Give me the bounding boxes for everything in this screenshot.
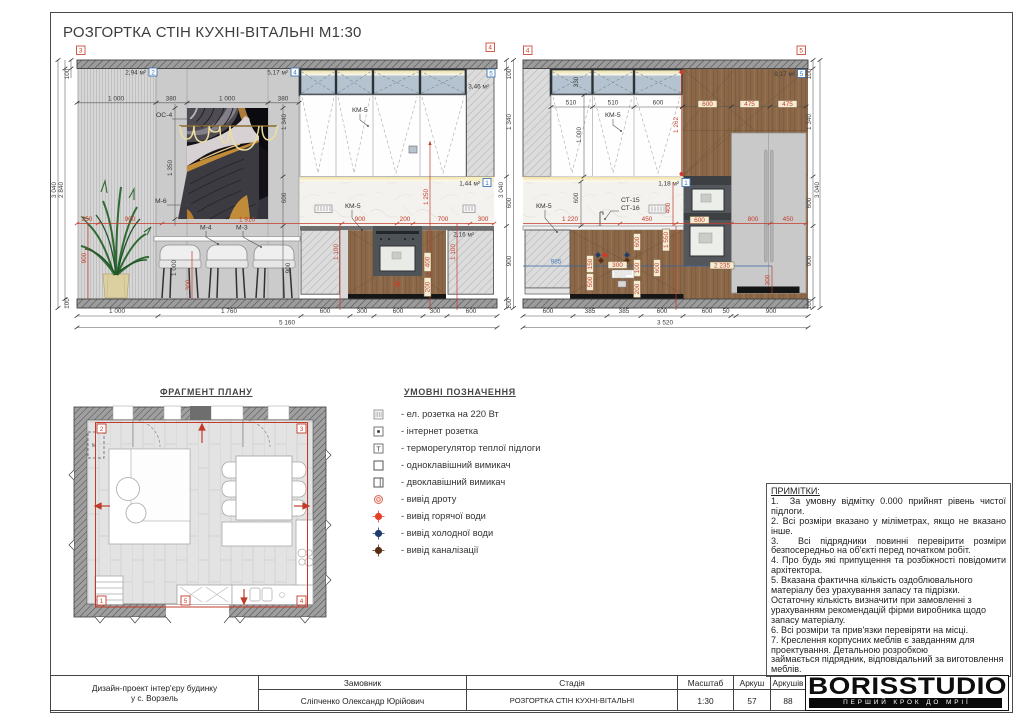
svg-text:600: 600 — [543, 308, 554, 315]
svg-text:600: 600 — [702, 308, 713, 315]
svg-text:250: 250 — [82, 216, 93, 223]
svg-text:600: 600 — [506, 197, 513, 208]
svg-text:3 040: 3 040 — [51, 182, 58, 198]
svg-text:1 910: 1 910 — [239, 217, 255, 224]
svg-text:600: 600 — [657, 308, 668, 315]
svg-text:600: 600 — [320, 308, 331, 315]
svg-text:475: 475 — [782, 101, 793, 108]
svg-text:300: 300 — [357, 308, 368, 315]
svg-text:1 100: 1 100 — [450, 244, 457, 260]
svg-text:КМ-5: КМ-5 — [536, 203, 552, 210]
svg-text:450: 450 — [642, 216, 653, 223]
svg-text:600: 600 — [806, 197, 813, 208]
svg-text:1 000: 1 000 — [576, 127, 583, 143]
svg-text:300: 300 — [765, 274, 772, 285]
svg-text:400: 400 — [425, 256, 432, 267]
svg-text:900: 900 — [766, 308, 777, 315]
svg-text:510: 510 — [608, 100, 619, 107]
svg-text:1 340: 1 340 — [506, 114, 513, 130]
svg-text:5: 5 — [800, 71, 804, 78]
svg-text:600: 600 — [281, 192, 288, 203]
svg-text:СТ-16: СТ-16 — [621, 205, 640, 212]
svg-text:380: 380 — [278, 96, 289, 103]
svg-text:400: 400 — [665, 202, 672, 213]
svg-text:500: 500 — [587, 276, 594, 287]
svg-text:2: 2 — [151, 69, 155, 76]
svg-text:1: 1 — [684, 180, 688, 187]
svg-text:200: 200 — [400, 216, 411, 223]
svg-text:800: 800 — [748, 216, 759, 223]
svg-text:100: 100 — [634, 262, 641, 273]
svg-text:5 160: 5 160 — [279, 320, 295, 327]
svg-text:2 235: 2 235 — [714, 263, 730, 270]
svg-text:600: 600 — [702, 101, 713, 108]
svg-text:300: 300 — [478, 216, 489, 223]
svg-text:ОС-4: ОС-4 — [156, 112, 172, 119]
svg-text:900: 900 — [81, 252, 88, 263]
svg-text:1 760: 1 760 — [221, 308, 237, 315]
svg-text:475: 475 — [744, 101, 755, 108]
svg-text:300: 300 — [430, 308, 441, 315]
svg-text:1,18 м²: 1,18 м² — [658, 181, 679, 188]
svg-text:2 840: 2 840 — [58, 182, 65, 198]
svg-text:700: 700 — [438, 216, 449, 223]
svg-text:900: 900 — [285, 262, 292, 273]
svg-text:600: 600 — [653, 100, 664, 107]
svg-text:100: 100 — [64, 298, 71, 309]
svg-text:4: 4 — [488, 45, 492, 52]
svg-text:900: 900 — [506, 255, 513, 266]
svg-text:385: 385 — [619, 308, 630, 315]
svg-text:1 000: 1 000 — [108, 96, 124, 103]
svg-text:КМ-5: КМ-5 — [605, 112, 621, 119]
svg-text:100: 100 — [64, 68, 71, 79]
svg-text:3 040: 3 040 — [498, 182, 505, 198]
svg-text:T: T — [376, 446, 381, 453]
svg-text:М-6: М-6 — [155, 198, 167, 205]
svg-text:150: 150 — [587, 258, 594, 269]
svg-text:1 340: 1 340 — [806, 114, 813, 130]
svg-text:М-4: М-4 — [200, 225, 212, 232]
svg-text:900: 900 — [806, 255, 813, 266]
svg-text:100: 100 — [806, 298, 813, 309]
svg-text:КМ-5: КМ-5 — [345, 203, 361, 210]
svg-text:1 262: 1 262 — [673, 117, 680, 133]
svg-text:5,17 м²: 5,17 м² — [267, 70, 288, 77]
svg-text:600: 600 — [466, 308, 477, 315]
svg-text:900: 900 — [125, 216, 136, 223]
svg-text:600: 600 — [694, 217, 705, 224]
svg-text:200: 200 — [425, 281, 432, 292]
svg-text:330: 330 — [573, 76, 580, 87]
svg-text:380: 380 — [166, 96, 177, 103]
svg-text:600: 600 — [654, 262, 661, 273]
svg-text:2,16 м²: 2,16 м² — [453, 232, 474, 239]
svg-text:510: 510 — [566, 100, 577, 107]
svg-text:1 340: 1 340 — [281, 114, 288, 130]
svg-text:9,17 м²: 9,17 м² — [774, 71, 795, 78]
svg-text:4: 4 — [526, 48, 530, 55]
svg-text:385: 385 — [585, 308, 596, 315]
svg-text:1 220: 1 220 — [562, 216, 578, 223]
svg-text:985: 985 — [551, 259, 562, 266]
svg-text:100: 100 — [806, 68, 813, 79]
svg-text:1 000: 1 000 — [219, 96, 235, 103]
svg-text:5: 5 — [799, 48, 803, 55]
svg-text:М-3: М-3 — [236, 225, 248, 232]
svg-text:200: 200 — [634, 283, 641, 294]
svg-text:3: 3 — [79, 48, 83, 55]
svg-text:5: 5 — [489, 70, 493, 77]
svg-text:100: 100 — [506, 298, 513, 309]
svg-text:1 250: 1 250 — [423, 189, 430, 205]
svg-text:300: 300 — [185, 279, 192, 290]
svg-text:600: 600 — [393, 308, 404, 315]
svg-text:1 550: 1 550 — [663, 232, 670, 248]
svg-text:600: 600 — [634, 236, 641, 247]
svg-text:450: 450 — [783, 216, 794, 223]
svg-text:900: 900 — [355, 216, 366, 223]
svg-text:3,46 м²: 3,46 м² — [468, 84, 489, 91]
svg-text:1,44 м²: 1,44 м² — [459, 181, 480, 188]
svg-text:1 000: 1 000 — [171, 260, 178, 276]
svg-text:1 100: 1 100 — [333, 244, 340, 260]
svg-text:50: 50 — [722, 308, 730, 315]
svg-text:100: 100 — [506, 68, 513, 79]
svg-text:3 040: 3 040 — [814, 182, 821, 198]
svg-text:3 520: 3 520 — [657, 320, 673, 327]
svg-text:2,94 м²: 2,94 м² — [125, 70, 146, 77]
svg-text:1: 1 — [485, 180, 489, 187]
svg-text:300: 300 — [612, 262, 623, 269]
svg-text:4: 4 — [293, 69, 297, 76]
svg-text:1 350: 1 350 — [167, 160, 174, 176]
svg-text:СТ-15: СТ-15 — [621, 197, 640, 204]
svg-text:600: 600 — [573, 192, 580, 203]
svg-text:КМ-5: КМ-5 — [352, 107, 368, 114]
svg-text:1 000: 1 000 — [109, 308, 125, 315]
